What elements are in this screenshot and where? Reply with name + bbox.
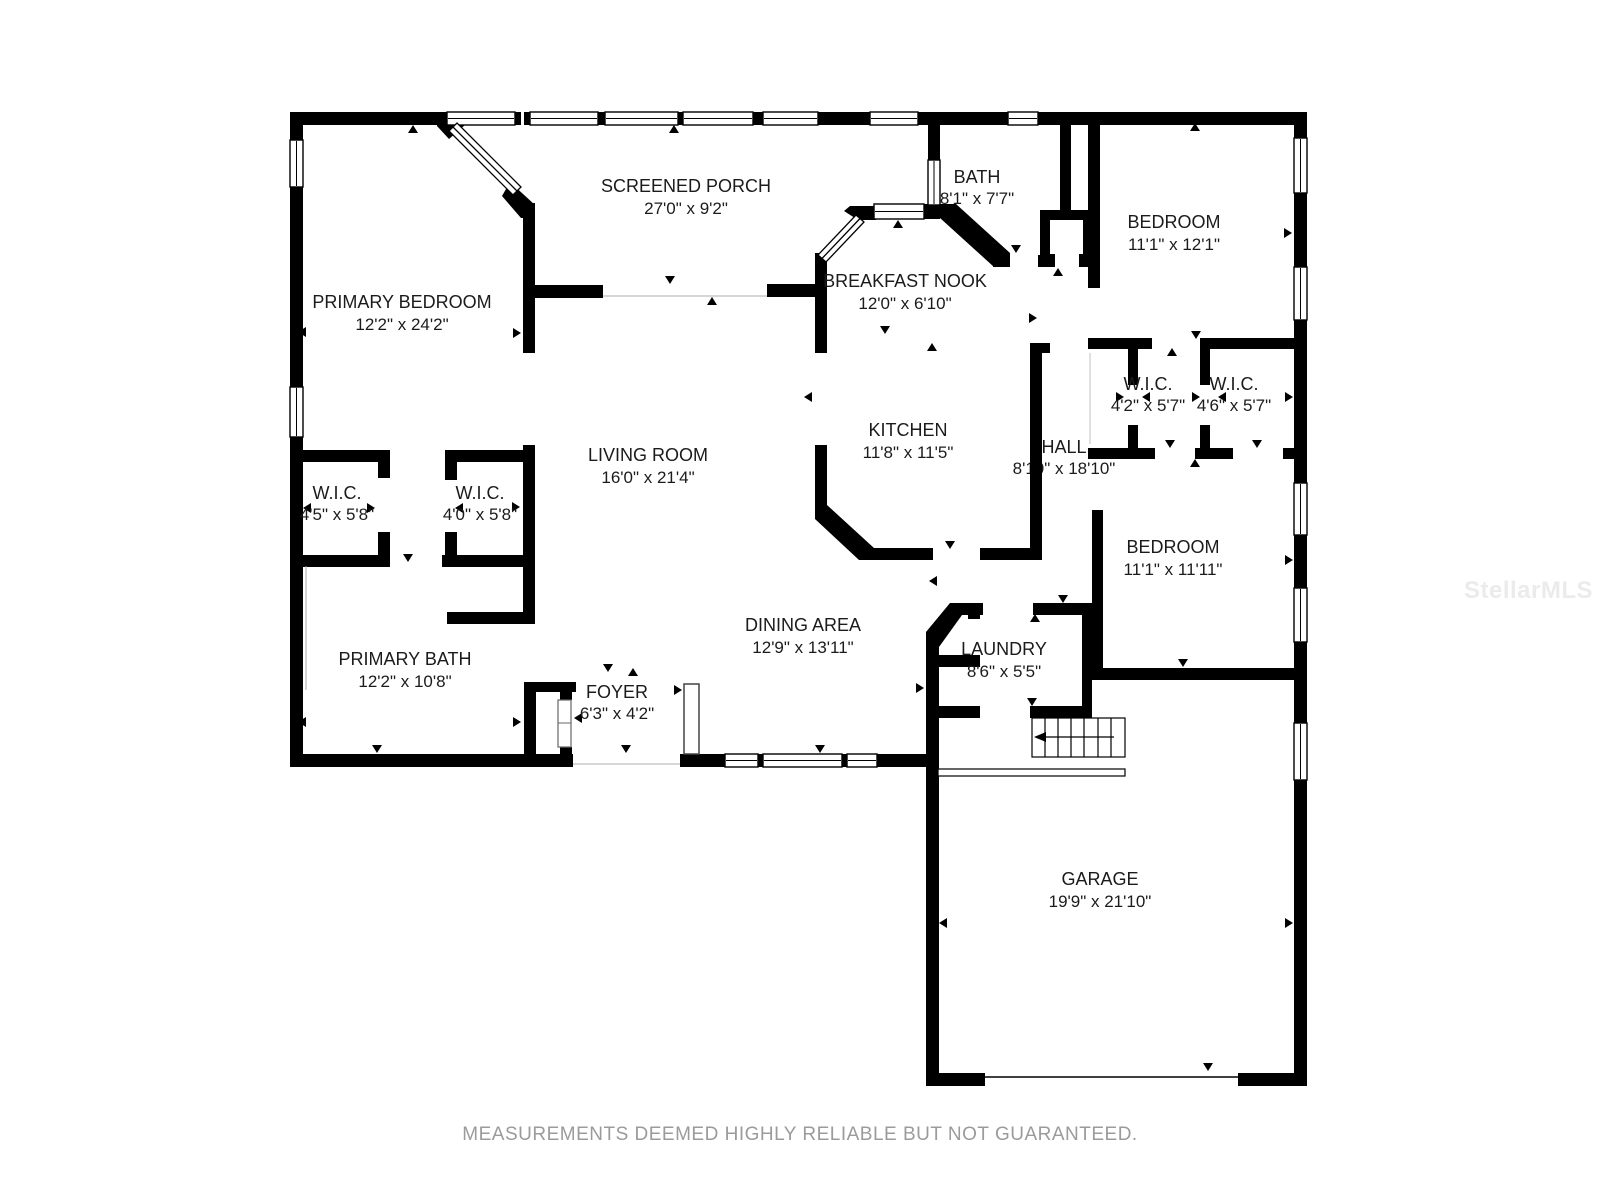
room-name: KITCHEN: [868, 420, 947, 440]
door-arrow: [1027, 698, 1037, 706]
stairs-landing-edge: [938, 769, 1125, 776]
stellar-mls-watermark: StellarMLS: [1464, 577, 1593, 605]
room-dims: 6'3" x 4'2": [580, 704, 654, 723]
room-name: W.I.C.: [456, 483, 505, 503]
door-arrow: [804, 392, 812, 402]
room-name: GARAGE: [1061, 869, 1138, 889]
door-arrow: [1058, 595, 1068, 603]
disclaimer-text: MEASUREMENTS DEEMED HIGHLY RELIABLE BUT …: [0, 1124, 1600, 1146]
door-arrow: [1053, 268, 1063, 276]
room-name: W.I.C.: [1124, 374, 1173, 394]
door-arrow: [1252, 440, 1262, 448]
room-dims: 27'0" x 9'2": [644, 199, 728, 218]
door-arrow: [1191, 331, 1201, 339]
room-label-bath: BATH 8'1" x 7'7": [940, 167, 1014, 208]
room-dims: 8'10" x 18'10": [1013, 459, 1116, 478]
door-arrow: [945, 541, 955, 549]
door-arrow: [403, 554, 413, 562]
door-arrow: [1285, 392, 1293, 402]
door-arrow: [603, 664, 613, 672]
door-arrow: [893, 220, 903, 228]
door-arrow: [408, 125, 418, 133]
door-arrow: [1203, 1063, 1213, 1071]
door-arrow: [707, 297, 717, 305]
door-arrow: [674, 685, 682, 695]
door-arrow: [628, 668, 638, 676]
room-label-bedroom-top-right: BEDROOM 11'1" x 12'1": [1127, 212, 1220, 254]
room-name: BATH: [954, 167, 1001, 187]
floor-plan-drawing: HALL 8'10" x 18'10": [0, 0, 1600, 1200]
walls: [290, 112, 1307, 1086]
doors: [306, 296, 1238, 1086]
garage-door-opening: [985, 1073, 1238, 1086]
stairs: [938, 718, 1125, 776]
room-dims: 11'1" x 11'11": [1124, 560, 1223, 579]
room-name: W.I.C.: [313, 483, 362, 503]
room-name: FOYER: [586, 682, 648, 702]
room-label-breakfast-nook: BREAKFAST NOOK 12'0" x 6'10": [823, 271, 987, 313]
door-arrow: [916, 683, 924, 693]
door-arrow: [1029, 313, 1037, 323]
room-label-screened-porch: SCREENED PORCH 27'0" x 9'2": [601, 176, 771, 218]
room-dims: 4'5" x 5'8": [300, 505, 374, 524]
room-label-bedroom-middle-right: BEDROOM 11'1" x 11'11": [1124, 537, 1223, 579]
room-name: HALL: [1041, 437, 1086, 457]
door-arrow: [1190, 459, 1200, 467]
door-arrow: [929, 576, 937, 586]
room-dims: 11'8" x 11'5": [863, 443, 954, 462]
door-arrow: [513, 328, 521, 338]
room-label-foyer: FOYER 6'3" x 4'2": [580, 682, 654, 723]
door-arrow: [939, 918, 947, 928]
door-arrow: [621, 745, 631, 753]
room-label-wic-primary-right: W.I.C. 4'0" x 5'8": [443, 483, 517, 524]
room-label-living-room: LIVING ROOM 16'0" x 21'4": [588, 445, 708, 487]
entry-door-leaf: [684, 684, 699, 754]
room-name: LAUNDRY: [961, 639, 1047, 659]
room-label-kitchen: KITCHEN 11'8" x 11'5": [863, 420, 954, 462]
door-arrow: [1165, 440, 1175, 448]
door-arrow: [372, 745, 382, 753]
room-dims: 11'1" x 12'1": [1128, 235, 1220, 254]
floor-plan-page: HALL 8'10" x 18'10": [0, 0, 1600, 1200]
room-dims: 19'9" x 21'10": [1049, 892, 1152, 911]
room-dims: 8'1" x 7'7": [940, 189, 1014, 208]
door-arrow: [880, 326, 890, 334]
room-dims: 4'6" x 5'7": [1197, 396, 1271, 415]
room-label-garage: GARAGE 19'9" x 21'10": [1049, 869, 1152, 911]
room-name: BREAKFAST NOOK: [823, 271, 987, 291]
room-name: W.I.C.: [1210, 374, 1259, 394]
door-arrow: [1167, 348, 1177, 356]
door-arrow: [1178, 659, 1188, 667]
room-label-primary-bedroom: PRIMARY BEDROOM 12'2" x 24'2": [312, 292, 491, 334]
room-dims: 12'2" x 24'2": [355, 315, 448, 334]
door-direction-arrows: [298, 123, 1293, 1071]
door-arrow: [815, 745, 825, 753]
door-arrow: [1285, 918, 1293, 928]
door-arrow: [1284, 228, 1292, 238]
door-arrow: [1011, 245, 1021, 253]
room-dims: 8'6" x 5'5": [967, 662, 1041, 681]
room-dims: 16'0" x 21'4": [601, 468, 694, 487]
door-arrow: [927, 343, 937, 351]
room-name: PRIMARY BEDROOM: [312, 292, 491, 312]
room-dims: 12'9" x 13'11": [752, 638, 853, 657]
room-dims: 12'2" x 10'8": [358, 672, 451, 691]
door-arrow: [665, 276, 675, 284]
door-arrow: [669, 125, 679, 133]
room-dims: 4'0" x 5'8": [443, 505, 517, 524]
room-name: PRIMARY BATH: [338, 649, 471, 669]
room-label-dining-area: DINING AREA 12'9" x 13'11": [745, 615, 861, 657]
room-name: BEDROOM: [1126, 537, 1219, 557]
room-name: SCREENED PORCH: [601, 176, 771, 196]
door-arrow: [513, 717, 521, 727]
door-arrow: [1285, 555, 1293, 565]
room-name: LIVING ROOM: [588, 445, 708, 465]
room-label-primary-bath: PRIMARY BATH 12'2" x 10'8": [338, 649, 471, 691]
room-name: BEDROOM: [1127, 212, 1220, 232]
room-dims: 4'2" x 5'7": [1111, 396, 1185, 415]
door-arrow: [1030, 614, 1040, 622]
room-dims: 12'0" x 6'10": [858, 294, 951, 313]
room-name: DINING AREA: [745, 615, 861, 635]
